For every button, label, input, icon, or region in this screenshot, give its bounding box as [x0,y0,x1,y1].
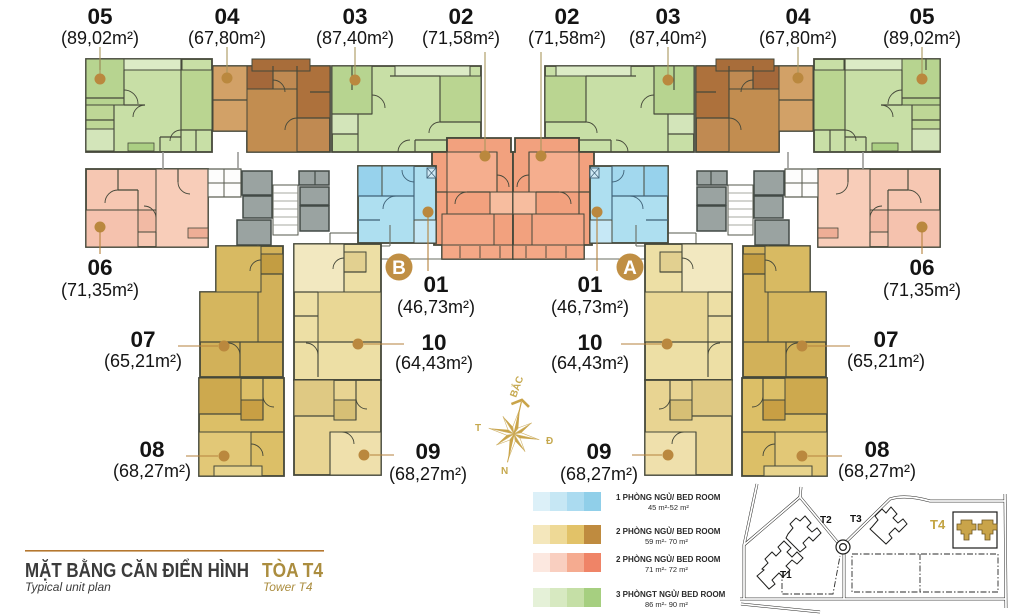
svg-text:01: 01 [423,272,448,297]
svg-text:(64,43m²): (64,43m²) [551,353,629,373]
svg-text:MẶT BẰNG CĂN ĐIỂN HÌNH: MẶT BẰNG CĂN ĐIỂN HÌNH [25,558,249,582]
svg-text:(71,58m²): (71,58m²) [528,28,606,48]
svg-text:(68,27m²): (68,27m²) [113,461,191,481]
svg-text:05: 05 [87,4,112,29]
svg-text:04: 04 [785,4,811,29]
svg-text:04: 04 [214,4,240,29]
svg-text:Typical unit plan: Typical unit plan [25,580,111,594]
svg-text:T: T [475,423,481,434]
svg-text:(68,27m²): (68,27m²) [389,464,467,484]
svg-text:08: 08 [139,437,164,462]
svg-text:(71,58m²): (71,58m²) [422,28,500,48]
svg-text:Tower T4: Tower T4 [263,580,313,594]
svg-text:2 PHÒNG NGỦ/ BED ROOM: 2 PHÒNG NGỦ/ BED ROOM [616,527,721,536]
svg-text:T1: T1 [780,570,792,581]
svg-text:05: 05 [909,4,934,29]
svg-text:(64,43m²): (64,43m²) [395,353,473,373]
svg-text:2 PHÒNG NGỦ/ BED ROOM: 2 PHÒNG NGỦ/ BED ROOM [616,555,721,564]
svg-text:71 m²- 72 m²: 71 m²- 72 m² [645,565,688,574]
svg-text:08: 08 [864,437,889,462]
svg-text:(71,35m²): (71,35m²) [883,280,961,300]
svg-text:(46,73m²): (46,73m²) [551,297,629,317]
svg-text:(87,40m²): (87,40m²) [629,28,707,48]
svg-text:B: B [392,258,406,279]
svg-text:45 m²-52 m²: 45 m²-52 m² [648,503,689,512]
svg-text:N: N [501,466,508,477]
svg-text:T4: T4 [930,517,946,532]
svg-text:86 m²- 90 m²: 86 m²- 90 m² [645,600,688,609]
svg-text:01: 01 [577,272,602,297]
svg-text:06: 06 [87,255,112,280]
svg-text:A: A [623,258,637,279]
svg-text:09: 09 [586,439,611,464]
svg-text:Đ: Đ [546,436,553,447]
svg-text:10: 10 [421,330,446,355]
svg-text:(65,21m²): (65,21m²) [104,351,182,371]
svg-text:(67,80m²): (67,80m²) [188,28,266,48]
svg-text:09: 09 [415,439,440,464]
svg-text:(67,80m²): (67,80m²) [759,28,837,48]
svg-text:03: 03 [655,4,680,29]
svg-text:07: 07 [130,327,155,352]
svg-text:(71,35m²): (71,35m²) [61,280,139,300]
svg-text:(46,73m²): (46,73m²) [397,297,475,317]
svg-text:T2: T2 [820,515,832,526]
svg-text:07: 07 [873,327,898,352]
svg-text:(89,02m²): (89,02m²) [61,28,139,48]
svg-text:10: 10 [577,330,602,355]
svg-text:T3: T3 [850,514,862,525]
svg-text:(65,21m²): (65,21m²) [847,351,925,371]
svg-text:06: 06 [909,255,934,280]
svg-text:(68,27m²): (68,27m²) [838,461,916,481]
svg-text:(68,27m²): (68,27m²) [560,464,638,484]
svg-text:02: 02 [554,4,579,29]
svg-text:3 PHÒNGT NGỦ/ BED ROOM: 3 PHÒNGT NGỦ/ BED ROOM [616,590,726,599]
svg-text:59 m²- 70 m²: 59 m²- 70 m² [645,537,688,546]
svg-text:02: 02 [448,4,473,29]
svg-text:(87,40m²): (87,40m²) [316,28,394,48]
svg-text:(89,02m²): (89,02m²) [883,28,961,48]
svg-text:1 PHÒNG NGỦ/ BED ROOM: 1 PHÒNG NGỦ/ BED ROOM [616,493,721,502]
svg-text:TÒA T4: TÒA T4 [262,558,324,582]
svg-text:03: 03 [342,4,367,29]
